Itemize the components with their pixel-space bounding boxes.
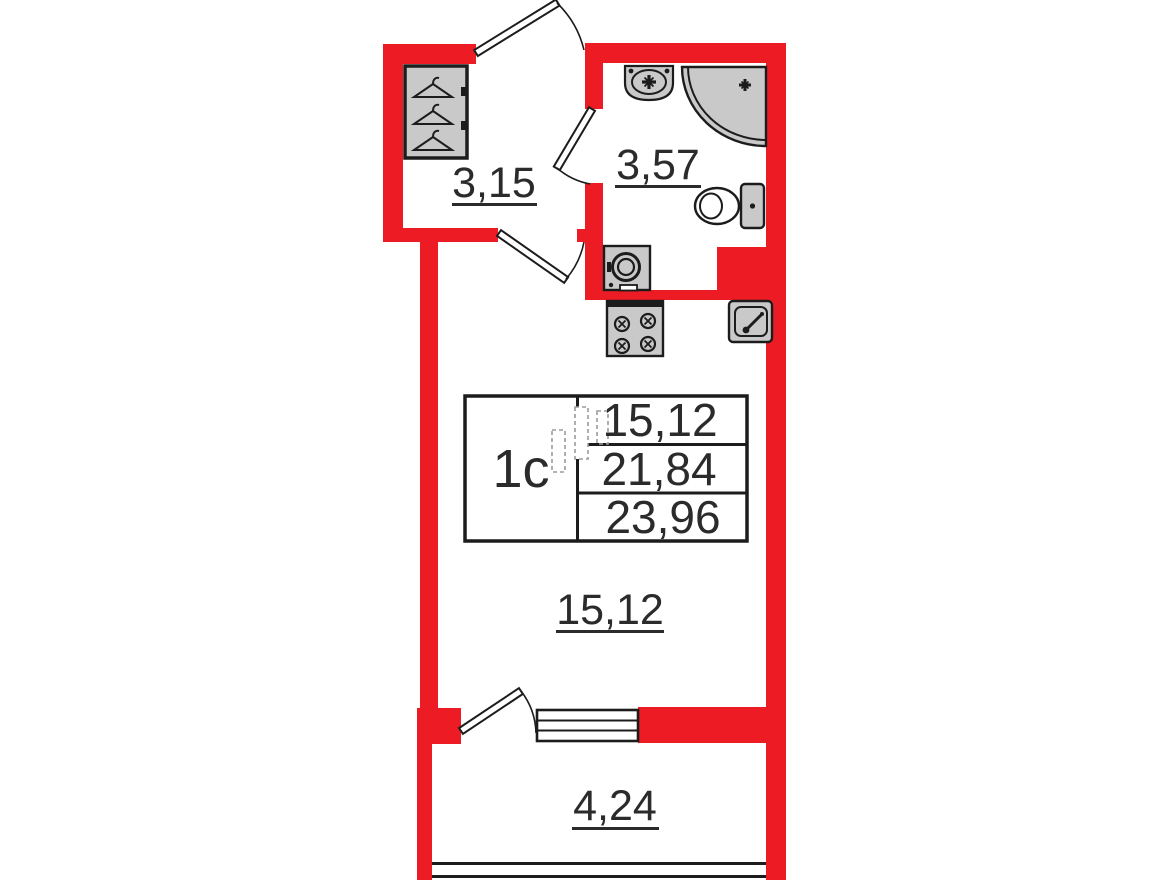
info-value-living: 15,12 xyxy=(602,394,717,446)
door-swing-arc xyxy=(566,242,584,279)
toilet-bowl xyxy=(695,188,739,224)
entrance-door-icon xyxy=(474,0,584,56)
bathroom-underline xyxy=(615,185,701,188)
wall-closet-bottom xyxy=(383,228,498,242)
bathroom-door-icon xyxy=(554,107,595,184)
window-frame xyxy=(537,710,638,741)
wardrobe-hangers-icon xyxy=(405,66,468,158)
toilet-button xyxy=(750,203,755,208)
door-leaf xyxy=(497,230,568,283)
balcony-window-icon xyxy=(537,710,638,741)
shower-tray xyxy=(682,67,766,146)
balcony-area-label: 4,24 xyxy=(573,782,657,830)
glazing-line xyxy=(432,875,766,878)
wall-balcony-left xyxy=(417,708,432,880)
washing-machine-icon xyxy=(604,246,650,291)
kitchen-faucet-tip xyxy=(760,312,764,316)
entry-hall-underline xyxy=(452,203,537,206)
wall-right xyxy=(766,43,786,880)
main-room-area-label: 15,12 xyxy=(556,586,664,634)
door-leaf xyxy=(554,107,595,170)
room-door-icon xyxy=(497,230,584,283)
wall-bath-bottom xyxy=(603,290,717,300)
wall-closet-left xyxy=(383,44,403,242)
stove-back-edge xyxy=(607,301,663,307)
plan-canvas: 3,15 3,57 15,12 4,24 1c 15,12 21,84 23,9… xyxy=(0,0,1173,880)
door-swing-arc xyxy=(557,3,584,50)
wall-bath-left-lower xyxy=(585,183,603,300)
washer-knob xyxy=(609,283,613,287)
door-swing-arc xyxy=(521,691,536,733)
wardrobe-handle xyxy=(461,87,468,96)
entry-hall-area-label: 3,15 xyxy=(452,159,536,207)
info-value-total: 23,96 xyxy=(605,491,720,543)
corner-shower-icon xyxy=(682,67,766,146)
balcony-door-icon xyxy=(459,688,536,734)
main-room-underline xyxy=(556,630,664,633)
stove-icon xyxy=(607,301,663,356)
door-leaf xyxy=(474,0,559,56)
wall-bath-top xyxy=(585,43,786,63)
wall-closet-top xyxy=(383,44,476,64)
floor-plan: 3,15 3,57 15,12 4,24 1c 15,12 21,84 23,9… xyxy=(0,0,1173,880)
kitchen-faucet-base xyxy=(743,327,750,334)
tap-dot xyxy=(629,69,634,74)
wardrobe-handle xyxy=(461,121,468,130)
tap-dot xyxy=(665,69,670,74)
wall-balcony-right-band xyxy=(638,707,766,743)
bathroom-sink-icon xyxy=(625,66,673,100)
glazing-line xyxy=(432,862,766,865)
wall-nub xyxy=(577,229,585,242)
wall-bath-left-upper xyxy=(585,63,603,109)
door-swing-arc xyxy=(557,168,590,184)
balcony-glazing-icon xyxy=(432,862,766,878)
wall-main-left xyxy=(420,242,438,708)
kitchen-sink-icon xyxy=(729,301,772,342)
info-value-middle: 21,84 xyxy=(601,443,716,495)
toilet-icon xyxy=(695,184,764,228)
washer-drawer xyxy=(620,285,637,291)
wall-bath-corner-block xyxy=(717,247,766,300)
bathroom-area-label: 3,57 xyxy=(616,141,700,189)
door-leaf xyxy=(459,688,523,734)
balcony-underline xyxy=(572,827,659,830)
washer-handle xyxy=(607,262,611,272)
unit-type-label: 1c xyxy=(492,439,549,499)
